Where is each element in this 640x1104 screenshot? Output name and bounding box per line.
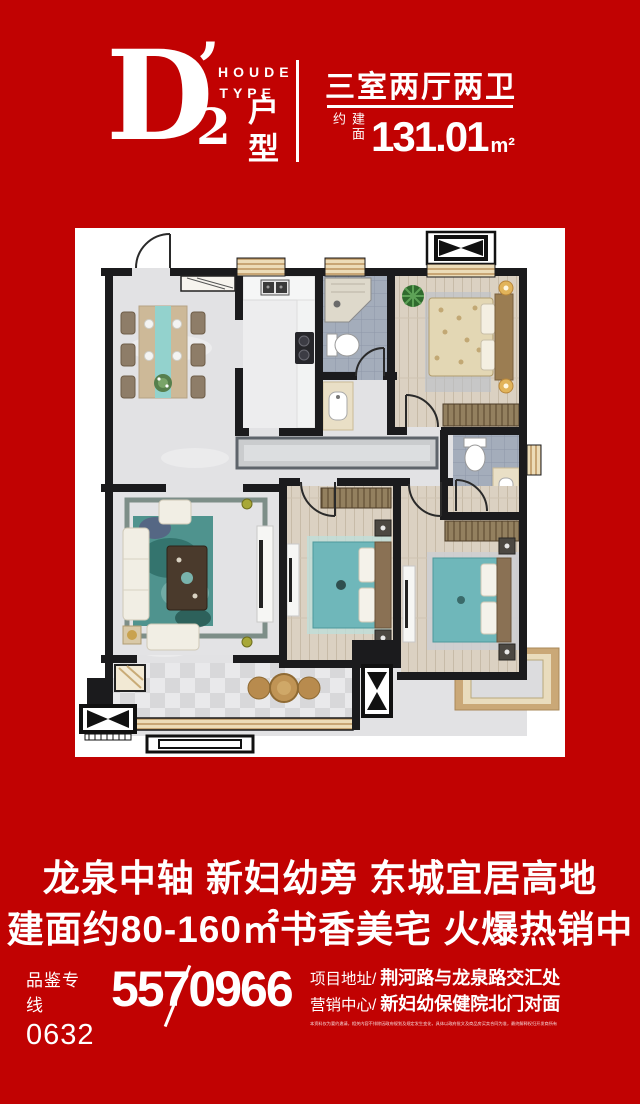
sales-center-label: 营销中心/ bbox=[310, 995, 376, 1017]
area-block: 建面约 131.01 m² bbox=[329, 112, 515, 158]
disclaimer-text: 本资料仅为要约邀请，相关内容不排除因政府规划及规定发生变化，具体以政府批文及商品… bbox=[310, 1021, 578, 1026]
entry-door bbox=[136, 234, 170, 268]
type-label: 户型 bbox=[238, 94, 283, 174]
type-number: 2 bbox=[196, 102, 231, 152]
brand-line1: HOUDE bbox=[218, 62, 276, 83]
coffee-table-icon bbox=[167, 546, 207, 610]
decor-dot bbox=[242, 637, 252, 647]
type-apostrophe: ’ bbox=[197, 34, 220, 100]
floorplan-panel bbox=[75, 228, 565, 757]
bedroom-master bbox=[395, 276, 519, 427]
wardrobe-icon bbox=[443, 404, 519, 426]
stove-icon bbox=[295, 332, 314, 364]
kitchen bbox=[243, 276, 315, 428]
tv-cabinet-icon bbox=[403, 566, 415, 642]
vanity-nook bbox=[323, 382, 353, 430]
area-prefix: 建面约 bbox=[329, 112, 367, 156]
header-rule bbox=[327, 105, 513, 108]
decor-dot bbox=[242, 499, 252, 509]
entry-closet bbox=[181, 276, 235, 291]
toilet-icon bbox=[327, 334, 359, 356]
hotline-label: 品鉴专线 bbox=[26, 966, 96, 1016]
address-value: 荆河路与龙泉路交汇处 bbox=[380, 965, 560, 991]
bed-3-icon bbox=[427, 538, 519, 660]
bay-window-ac bbox=[427, 232, 495, 277]
marketing-line2: 建面约80-160㎡书香美宅 火爆热销中 bbox=[0, 899, 640, 953]
tv-cabinet-icon bbox=[287, 544, 299, 616]
room-layout-text: 三室两厅两卫 bbox=[325, 62, 517, 106]
bay-below-balcony bbox=[147, 736, 253, 752]
toilet-2-icon bbox=[464, 438, 486, 471]
hotline-number: 5570966 bbox=[111, 960, 292, 1018]
area-value: 131.01 bbox=[371, 116, 487, 158]
floorplan bbox=[75, 228, 565, 757]
hotline-area-code: 0632 bbox=[26, 1019, 96, 1052]
bath-window bbox=[325, 258, 365, 276]
wardrobe-icon bbox=[321, 488, 391, 508]
header-divider bbox=[296, 60, 299, 162]
ac-unit-left bbox=[81, 706, 135, 740]
ac-unit-middle bbox=[363, 666, 391, 716]
plant-icon bbox=[402, 285, 424, 307]
balcony-table-icon bbox=[248, 674, 320, 702]
bed-2-icon bbox=[307, 520, 391, 646]
dining-room bbox=[121, 306, 205, 398]
balcony bbox=[113, 663, 353, 730]
kitchen-sink-icon bbox=[261, 280, 289, 295]
living-room bbox=[113, 492, 279, 655]
bedroom-2 bbox=[287, 486, 393, 660]
poster: D ’ 2 HOUDE TYPE 户型 三室两厅两卫 建面约 131.01 m² bbox=[0, 0, 640, 1104]
hotline-block: 品鉴专线 0632 bbox=[26, 966, 96, 1052]
balcony-window bbox=[115, 718, 353, 730]
bed-master-icon bbox=[429, 281, 513, 393]
tv-cabinet-icon bbox=[257, 526, 273, 622]
sales-center-value: 新妇幼保健院北门对面 bbox=[380, 991, 560, 1017]
marketing-line1: 龙泉中轴 新妇幼旁 东城宜居高地 bbox=[0, 848, 640, 902]
address-block: 项目地址/ 荆河路与龙泉路交汇处 营销中心/ 新妇幼保健院北门对面 本资料仅为要… bbox=[310, 965, 578, 1026]
dining-table-icon bbox=[121, 306, 205, 398]
hallway-rug bbox=[237, 438, 437, 468]
address-label: 项目地址/ bbox=[310, 969, 376, 991]
area-unit: m² bbox=[490, 134, 514, 158]
bath2-window bbox=[527, 445, 541, 475]
bathroom-1 bbox=[323, 276, 387, 380]
kitchen-window bbox=[237, 258, 285, 276]
